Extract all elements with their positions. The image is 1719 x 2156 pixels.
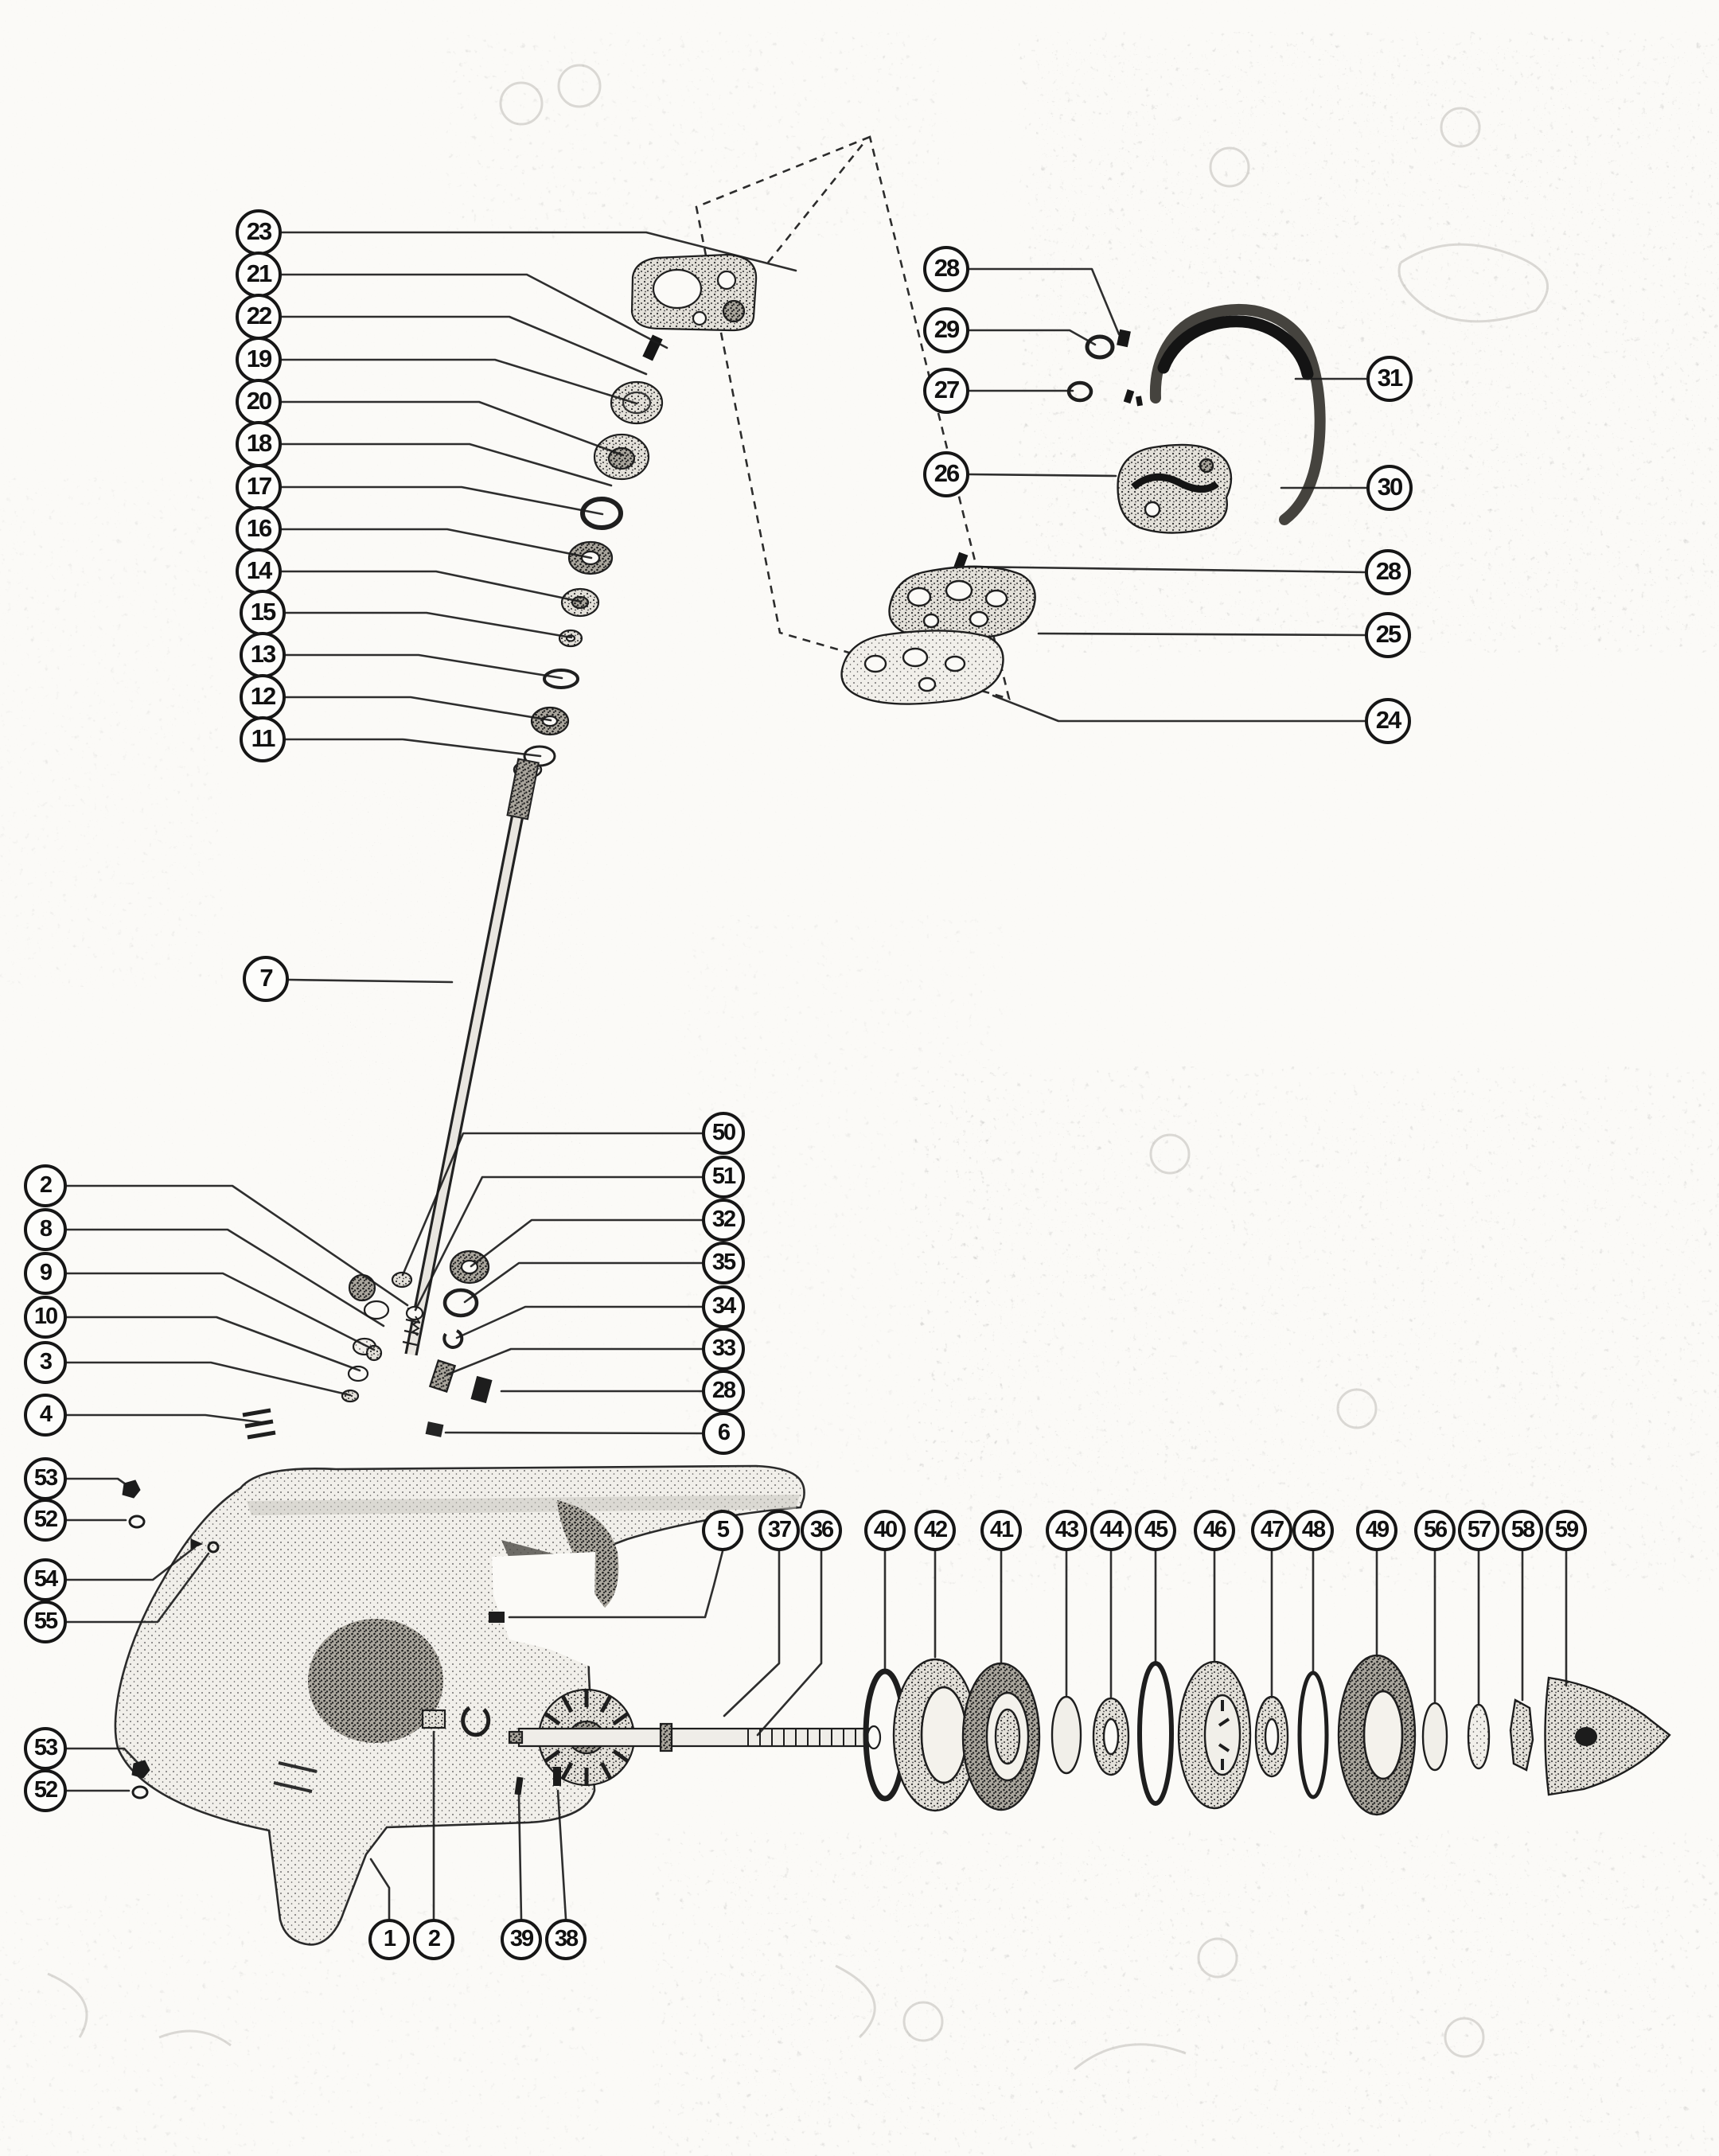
callout-53: 53 <box>24 1727 67 1770</box>
callout-number: 41 <box>990 1517 1012 1543</box>
callout-10: 10 <box>24 1296 67 1339</box>
tab-washer-58 <box>1510 1700 1533 1770</box>
callout-47: 47 <box>1251 1510 1292 1551</box>
callout-number: 42 <box>924 1517 946 1543</box>
callout-number: 28 <box>712 1378 735 1404</box>
callout-number: 38 <box>555 1926 577 1952</box>
callout-15: 15 <box>240 590 286 636</box>
callout-number: 29 <box>934 315 958 344</box>
callout-45: 45 <box>1135 1510 1176 1551</box>
callout-55: 55 <box>24 1600 67 1643</box>
callout-number: 30 <box>1378 473 1401 501</box>
callout-25: 25 <box>1365 612 1411 658</box>
callout-number: 54 <box>34 1566 57 1593</box>
callout-number: 31 <box>1378 364 1401 392</box>
callout-number: 6 <box>718 1420 729 1446</box>
callout-number: 22 <box>247 302 271 330</box>
callout-6: 6 <box>702 1412 745 1455</box>
callout-23: 23 <box>236 209 282 255</box>
callout-7: 7 <box>243 956 289 1002</box>
propeller-shaft <box>519 1729 875 1746</box>
callout-12: 12 <box>240 674 286 720</box>
callout-46: 46 <box>1194 1510 1235 1551</box>
callout-number: 56 <box>1424 1517 1446 1543</box>
shaft-end-tip <box>509 1732 522 1743</box>
callout-16: 16 <box>236 506 282 552</box>
callout-number: 58 <box>1511 1517 1534 1543</box>
callout-44: 44 <box>1090 1510 1132 1551</box>
callout-28: 28 <box>923 246 969 292</box>
shaft-end-washer <box>867 1726 880 1749</box>
scanned-parts-diagram-page: 2321221920181716141513121128292726313028… <box>0 0 1719 2156</box>
callout-number: 35 <box>712 1250 735 1276</box>
leader-line-6 <box>446 1433 702 1433</box>
callout-number: 9 <box>40 1260 51 1286</box>
callout-number: 51 <box>712 1164 735 1190</box>
washer-56 <box>1423 1703 1447 1770</box>
callout-number: 18 <box>247 429 271 458</box>
callout-48: 48 <box>1292 1510 1334 1551</box>
callout-43: 43 <box>1046 1510 1087 1551</box>
callout-3: 3 <box>24 1341 67 1384</box>
callout-13: 13 <box>240 632 286 678</box>
callout-20: 20 <box>236 379 282 425</box>
shaft-shoulder <box>661 1724 672 1751</box>
callout-2: 2 <box>24 1164 67 1207</box>
callout-number: 44 <box>1100 1517 1122 1543</box>
washer-51 <box>407 1307 423 1320</box>
callout-number: 23 <box>247 217 271 246</box>
callout-number: 53 <box>34 1735 57 1761</box>
callout-number: 12 <box>251 682 275 711</box>
callout-number: 13 <box>251 640 275 669</box>
callout-33: 33 <box>702 1328 745 1370</box>
callout-number: 40 <box>874 1517 896 1543</box>
callout-number: 47 <box>1261 1517 1283 1543</box>
callout-number: 57 <box>1468 1517 1490 1543</box>
washer-57 <box>1468 1705 1489 1768</box>
callout-number: 25 <box>1376 620 1400 649</box>
callout-40: 40 <box>864 1510 906 1551</box>
callout-42: 42 <box>914 1510 956 1551</box>
callout-19: 19 <box>236 337 282 383</box>
callout-number: 2 <box>40 1172 51 1199</box>
callout-35: 35 <box>702 1242 745 1285</box>
callout-49: 49 <box>1356 1510 1397 1551</box>
callout-number: 33 <box>712 1335 735 1362</box>
callout-number: 16 <box>247 514 271 543</box>
callout-30: 30 <box>1366 465 1413 511</box>
callout-24: 24 <box>1365 698 1411 744</box>
bushing-2 <box>423 1710 445 1728</box>
callout-number: 14 <box>247 556 271 585</box>
callout-4: 4 <box>24 1394 67 1437</box>
callout-number: 37 <box>768 1517 790 1543</box>
callout-number: 8 <box>40 1216 51 1242</box>
callout-39: 39 <box>501 1919 542 1960</box>
callout-14: 14 <box>236 548 282 595</box>
callout-1: 1 <box>368 1919 410 1960</box>
callout-number: 34 <box>712 1293 735 1320</box>
callout-number: 28 <box>934 254 958 283</box>
intake-stud-5 <box>489 1612 505 1623</box>
callout-34: 34 <box>702 1285 745 1328</box>
callout-56: 56 <box>1414 1510 1456 1551</box>
callout-number: 5 <box>717 1517 728 1543</box>
callout-28: 28 <box>702 1370 745 1413</box>
callout-number: 24 <box>1376 706 1400 735</box>
callout-51: 51 <box>702 1156 745 1199</box>
cone-hub-hole <box>1575 1727 1597 1746</box>
callout-number: 32 <box>712 1207 735 1233</box>
callout-37: 37 <box>758 1510 800 1551</box>
callout-number: 10 <box>34 1304 57 1330</box>
callout-number: 48 <box>1302 1517 1324 1543</box>
callout-9: 9 <box>24 1252 67 1295</box>
callout-8: 8 <box>24 1208 67 1251</box>
callout-number: 17 <box>247 472 271 501</box>
callout-number: 1 <box>384 1926 395 1952</box>
callout-number: 11 <box>251 724 275 753</box>
callout-number: 49 <box>1366 1517 1388 1543</box>
callout-57: 57 <box>1458 1510 1499 1551</box>
drive-pin-38 <box>553 1767 561 1786</box>
callout-52: 52 <box>24 1499 67 1542</box>
callout-18: 18 <box>236 421 282 467</box>
callout-28: 28 <box>1365 549 1411 595</box>
callout-number: 55 <box>34 1608 57 1635</box>
callout-32: 32 <box>702 1199 745 1242</box>
callout-11: 11 <box>240 716 286 762</box>
callout-number: 28 <box>1376 557 1400 586</box>
callout-number: 36 <box>810 1517 832 1543</box>
callout-26: 26 <box>923 451 969 497</box>
callout-number: 3 <box>40 1349 51 1375</box>
callout-number: 52 <box>34 1777 57 1803</box>
callout-41: 41 <box>980 1510 1022 1551</box>
callout-number: 59 <box>1555 1517 1577 1543</box>
callout-17: 17 <box>236 464 282 510</box>
callout-number: 26 <box>934 459 958 488</box>
cluster-washer-2 <box>349 1367 368 1381</box>
callout-number: 50 <box>712 1120 735 1146</box>
callout-52: 52 <box>24 1769 67 1812</box>
callout-number: 52 <box>34 1507 57 1533</box>
washer-43 <box>1052 1697 1081 1773</box>
callout-5: 5 <box>702 1510 743 1551</box>
callout-number: 21 <box>247 259 271 288</box>
callout-22: 22 <box>236 294 282 340</box>
callout-58: 58 <box>1502 1510 1543 1551</box>
callout-38: 38 <box>545 1919 587 1960</box>
callout-50: 50 <box>702 1112 745 1155</box>
callout-number: 27 <box>934 376 958 404</box>
callout-number: 7 <box>259 964 271 992</box>
callout-27: 27 <box>923 368 969 414</box>
callout-number: 19 <box>247 345 271 373</box>
callout-number: 53 <box>34 1465 57 1491</box>
callout-number: 45 <box>1144 1517 1167 1543</box>
callout-number: 43 <box>1055 1517 1078 1543</box>
callout-21: 21 <box>236 251 282 298</box>
shift-gear <box>349 1275 375 1300</box>
callout-number: 46 <box>1203 1517 1226 1543</box>
callout-number: 39 <box>510 1926 532 1952</box>
callout-53: 53 <box>24 1457 67 1500</box>
callout-number: 15 <box>251 598 275 626</box>
callout-number: 20 <box>247 387 271 415</box>
callout-36: 36 <box>801 1510 842 1551</box>
callout-59: 59 <box>1546 1510 1587 1551</box>
callout-54: 54 <box>24 1558 67 1601</box>
callout-29: 29 <box>923 307 969 353</box>
callout-number: 2 <box>428 1926 439 1952</box>
callout-31: 31 <box>1366 356 1413 402</box>
callout-2: 2 <box>413 1919 454 1960</box>
callout-number: 4 <box>40 1402 51 1428</box>
